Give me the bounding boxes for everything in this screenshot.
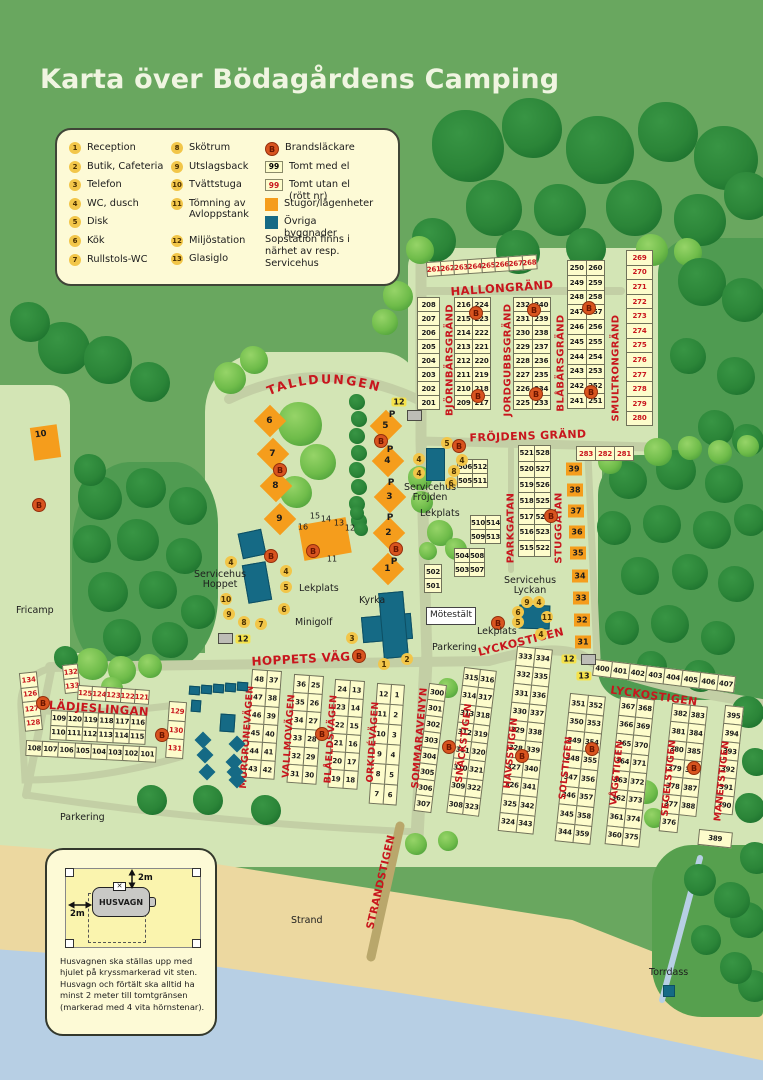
tree (405, 833, 427, 855)
plot-row: 505511 (458, 473, 488, 488)
legend-item: 4WC, dusch (69, 198, 167, 210)
facility-badge-8: 8 (448, 465, 460, 477)
tree (643, 505, 681, 543)
legend-item: 3Telefon (69, 179, 167, 191)
plot-15: 15 (346, 716, 363, 736)
plot-row: 246256 (568, 319, 605, 335)
plot-row: 501 (425, 578, 442, 593)
plot-block-row_283: 283282281 (577, 447, 634, 461)
stuga-box-31: 31 (575, 636, 591, 649)
corner-stone (65, 939, 74, 948)
plot-249: 249 (567, 275, 587, 291)
parking-mark: P (387, 513, 394, 523)
plot-129: 129 (168, 701, 187, 722)
distance-label-vertical: 2m (138, 873, 153, 883)
tree (735, 793, 763, 823)
plot-with-el-icon: 99 (265, 161, 283, 173)
plot-row: 280 (627, 411, 653, 427)
plot-236: 236 (532, 353, 552, 368)
label-lekplats: Lekplats (299, 584, 349, 594)
plot-222: 222 (472, 325, 491, 340)
fire-extinguisher-marker: B (36, 696, 50, 710)
plot-1: 1 (389, 684, 405, 706)
plot-246: 246 (567, 319, 587, 335)
plot-509: 509 (470, 529, 486, 544)
legend-item-label: Skötrum (189, 142, 269, 154)
plot-275: 275 (626, 338, 653, 354)
plot-359: 359 (572, 824, 592, 845)
miljostation-number: 12 (561, 655, 576, 664)
fire-extinguisher-marker: B (469, 306, 483, 320)
plot-row: 230238 (514, 325, 551, 340)
plot-213: 213 (454, 339, 473, 354)
plot-525: 525 (534, 492, 551, 509)
plot-row: 245255 (568, 334, 605, 350)
stuga-box-37: 37 (568, 505, 584, 518)
tree (432, 110, 504, 182)
plot-row: 277 (627, 367, 653, 383)
storstuga-number: 13 (334, 519, 344, 528)
parking-mark: P (388, 478, 395, 488)
tree (718, 566, 754, 602)
plot-201: 201 (417, 395, 440, 410)
label-lekplats: Lekplats (420, 509, 470, 519)
tree (88, 572, 128, 612)
plot-279: 279 (626, 396, 653, 412)
legend-number-icon: 13 (171, 253, 183, 265)
plot-274: 274 (626, 323, 653, 339)
tree (724, 172, 763, 220)
legend-item-label: Tömning av Avloppstank (189, 198, 269, 222)
page-title: Karta över Bödagårdens Camping (40, 64, 559, 95)
plot-14: 14 (347, 698, 364, 718)
plot-row: 520527 (519, 461, 551, 478)
stuga-box-38: 38 (567, 484, 583, 497)
plot-273: 273 (626, 308, 653, 324)
legend-item: 5Disk (69, 216, 167, 228)
tree (130, 362, 170, 402)
plot-37: 37 (265, 670, 282, 690)
caravan-rules-text: Husvagnen ska ställas upp med hjulet på … (60, 956, 208, 1013)
facility-badge-8: 8 (238, 616, 250, 628)
plot-522: 522 (534, 540, 551, 557)
legend-number-icon: 8 (171, 142, 183, 154)
plot-504: 504 (454, 548, 470, 563)
plot-row: 521528 (519, 445, 551, 462)
tree (350, 506, 364, 520)
tree (502, 98, 562, 158)
legend-number-icon: 6 (69, 235, 81, 247)
legend-item: 11Tömning av Avloppstank (171, 198, 269, 222)
tree (672, 554, 708, 590)
fire-extinguisher-marker: B (315, 727, 329, 741)
parking-mark: P (387, 445, 394, 455)
legend-item: Stugor/lägenheter (265, 198, 364, 211)
tree (737, 435, 759, 457)
tree (644, 438, 672, 466)
plot-row: 283282281 (577, 446, 634, 461)
building (191, 700, 202, 713)
facility-badge-2: 2 (401, 653, 413, 665)
stuga-number: 9 (277, 514, 283, 524)
fire-extinguisher-marker: B (515, 749, 529, 763)
label-parkering: Parkering (432, 643, 486, 653)
fire-extinguisher-icon: B (265, 142, 279, 156)
distance-label-horizontal: 2m (70, 909, 85, 919)
fire-extinguisher-marker: B (273, 463, 287, 477)
fire-extinguisher-marker: B (529, 387, 543, 401)
plot-18: 18 (342, 770, 359, 790)
legend-item-label: Telefon (87, 179, 167, 191)
tree (354, 522, 368, 536)
plot-517: 517 (518, 508, 535, 525)
plot-230: 230 (513, 325, 533, 340)
plot-519: 519 (518, 477, 535, 494)
legend-item-label: Glasiglo (189, 253, 269, 265)
plot-row: 212220 (455, 353, 491, 368)
fire-extinguisher-marker: B (687, 761, 701, 775)
tree (349, 428, 365, 444)
plot-row: 250260 (568, 260, 605, 276)
plot-255: 255 (586, 334, 606, 350)
stuga-number: 8 (273, 481, 279, 491)
legend-number-icon: 12 (171, 235, 183, 247)
legend-item-label: Rullstols-WC (87, 254, 167, 266)
plot-281: 281 (614, 446, 634, 461)
map-legend: 1Reception2Butik, Cafeteria3Telefon4WC, … (55, 128, 400, 286)
plot-row: 128 (24, 714, 43, 731)
plot-115: 115 (128, 729, 146, 745)
street-label-stuggatan: STUGGATAN (554, 492, 565, 563)
plot-row: 202 (418, 381, 440, 396)
legend-item-label: Stugor/lägenheter (284, 198, 364, 210)
plot-17: 17 (343, 752, 360, 772)
plot-220: 220 (472, 353, 491, 368)
label-kyrka: Kyrka (359, 596, 399, 606)
plot-228: 228 (513, 353, 533, 368)
plot-131: 131 (165, 738, 184, 759)
plot-212: 212 (454, 353, 473, 368)
tree (691, 925, 721, 955)
label-servicehus_frojden: Servicehus Fröjden (399, 483, 461, 504)
plot-527: 527 (534, 461, 551, 478)
tree (76, 648, 108, 680)
legend-number-icon: 11 (171, 198, 183, 210)
legend-item: 1Reception (69, 142, 167, 154)
legend-item-label: Butik, Cafeteria (87, 161, 167, 173)
stuga-number: 3 (387, 492, 393, 502)
fire-extinguisher-marker: B (452, 439, 466, 453)
legend-number-icon: 10 (171, 179, 183, 191)
plot-521: 521 (518, 445, 535, 462)
plot-row: 207 (418, 311, 440, 326)
legend-item-label: Tvättstuga (189, 179, 269, 191)
tree (722, 278, 763, 322)
plot-16: 16 (344, 734, 361, 754)
tree (240, 346, 268, 374)
parking-mark: P (391, 557, 398, 567)
tree (717, 357, 755, 395)
tree (684, 864, 716, 896)
legend-item: 9Utslagsback (171, 161, 269, 173)
caravan-shape: HUSVAGN (92, 887, 150, 917)
legend-item: 6Kök (69, 235, 167, 247)
tree (152, 622, 188, 658)
legend-number-icon: 7 (69, 254, 81, 266)
tree (117, 519, 159, 561)
plot-row: 205 (418, 339, 440, 354)
tree (466, 180, 522, 236)
tree (351, 445, 367, 461)
plot-270: 270 (626, 265, 653, 281)
stuga-box-33: 33 (573, 592, 589, 605)
stuga-box-36: 36 (569, 526, 585, 539)
miljostation-icon (407, 410, 422, 421)
plot-502: 502 (424, 564, 442, 579)
plot-128: 128 (23, 714, 43, 731)
plot-510: 510 (470, 515, 486, 530)
fire-extinguisher-marker: B (32, 498, 46, 512)
fire-extinguisher-marker: B (352, 649, 366, 663)
stuga-box-35: 35 (570, 547, 586, 560)
building (225, 683, 237, 693)
plot-row: 273 (627, 308, 653, 324)
plot-528: 528 (534, 445, 551, 462)
street-label-blabarsgrand: BLÅBÄRSGRÄND (556, 314, 567, 411)
plot-389: 389 (697, 829, 732, 848)
label-fricamp: Fricamp (16, 606, 66, 616)
street-label-bjornbarsgrand: BJÖRNBÄRSGRÄND (445, 304, 456, 416)
plot-row: 515522 (519, 540, 551, 557)
tree (138, 654, 162, 678)
tree (606, 180, 662, 236)
facility-badge-4: 4 (533, 596, 545, 608)
legend-item: 13Glasiglo (171, 253, 269, 265)
plot-269: 269 (626, 250, 653, 266)
street-label-smultrongrand: SMULTRONGRÄND (611, 315, 622, 422)
legend-number-icon: 4 (69, 198, 81, 210)
legend-item-label: WC, dusch (87, 198, 167, 210)
plot-237: 237 (532, 339, 552, 354)
plot-235: 235 (532, 367, 552, 382)
glasiglo-number: 13 (576, 672, 591, 681)
tree (678, 436, 702, 460)
tree (701, 621, 735, 655)
tree (406, 236, 434, 264)
plot-518: 518 (518, 492, 535, 509)
fire-extinguisher-marker: B (544, 509, 558, 523)
plot-207: 207 (417, 311, 440, 326)
fire-extinguisher-marker: B (471, 389, 485, 403)
miljostation-icon (581, 654, 596, 665)
plot-row: 276 (627, 352, 653, 368)
building (201, 685, 213, 695)
plot-13: 13 (348, 680, 365, 700)
legend-item: 2Butik, Cafeteria (69, 161, 167, 173)
stuga-number: 2 (386, 528, 392, 538)
plot-515: 515 (518, 540, 535, 557)
stugor-color-swatch (265, 198, 278, 211)
tree (278, 402, 322, 446)
plot-row: 76 (370, 783, 398, 806)
legend-item-label: Utslagsback (189, 161, 269, 173)
miljostation-number: 12 (235, 635, 250, 644)
facility-badge-10: 10 (220, 593, 232, 605)
tree (438, 831, 458, 851)
legend-note: Sopstation finns i närhet av resp. Servi… (265, 234, 383, 271)
tree (137, 785, 167, 815)
plot-130: 130 (166, 720, 185, 741)
plot-row: 516523 (519, 524, 551, 541)
plot-204: 204 (417, 353, 440, 368)
plot-row: 227235 (514, 367, 551, 382)
plot-row: 519526 (519, 477, 551, 494)
plot-row: 360375 (606, 825, 642, 848)
legend-number-icon: 5 (69, 216, 81, 228)
legend-item: 8Skötrum (171, 142, 269, 154)
tree (139, 571, 177, 609)
tree (351, 479, 367, 495)
plot-211: 211 (454, 367, 473, 382)
plot-514: 514 (485, 515, 501, 530)
plot-229: 229 (513, 339, 533, 354)
plot-272: 272 (626, 294, 653, 310)
plot-29: 29 (302, 747, 319, 767)
building (189, 686, 201, 696)
plot-row: 272 (627, 294, 653, 310)
plot-219: 219 (472, 367, 491, 382)
plot-278: 278 (626, 381, 653, 397)
tree (349, 462, 365, 478)
tree (126, 468, 166, 508)
plot-row: 208 (418, 297, 440, 312)
plot-520: 520 (518, 461, 535, 478)
plot-block-mid_pairs_a: 510514509513 (471, 516, 501, 544)
street-label-parkgatan: PARKGATAN (506, 493, 517, 564)
plot-row: 211219 (455, 367, 491, 382)
plot-513: 513 (485, 529, 501, 544)
fire-extinguisher-marker: B (155, 728, 169, 742)
fire-extinguisher-marker: B (584, 385, 598, 399)
plot-38: 38 (264, 688, 281, 708)
facility-badge-9: 9 (521, 596, 533, 608)
tree (705, 465, 743, 503)
plot-276: 276 (626, 352, 653, 368)
plot-503: 503 (454, 562, 470, 577)
legend-number-icon: 9 (171, 161, 183, 173)
stuga-number: 6 (267, 416, 273, 426)
legend-number-icon: 3 (69, 179, 81, 191)
plot-101: 101 (138, 746, 156, 763)
tree (84, 336, 132, 384)
plot-227: 227 (513, 367, 533, 382)
facility-badge-3: 3 (346, 632, 358, 644)
tree (720, 952, 752, 984)
storstuga-number: 15 (310, 512, 320, 521)
plot-row: 274 (627, 323, 653, 339)
fire-extinguisher-marker: B (582, 301, 596, 315)
tree (10, 302, 50, 342)
building (237, 682, 249, 692)
corner-stone (192, 868, 201, 877)
plot-388: 388 (678, 796, 698, 817)
plot-row: 324343 (499, 812, 536, 835)
plot-206: 206 (417, 325, 440, 340)
stuga-box-34: 34 (572, 570, 588, 583)
plot-375: 375 (621, 826, 641, 847)
tree (597, 511, 631, 545)
tree (708, 440, 732, 464)
label-parkering: Parkering (60, 813, 114, 823)
tree (169, 487, 207, 525)
plot-row: 229237 (514, 339, 551, 354)
plot-244: 244 (567, 349, 587, 365)
plot-block-smultron_col: 269270271272273274275276277278279280 (627, 251, 653, 426)
plot-row: 504508 (455, 548, 485, 563)
plot-407: 407 (716, 674, 737, 693)
building (213, 684, 225, 694)
label-lekplats: Lekplats (477, 627, 527, 637)
plot-row: 278 (627, 381, 653, 397)
plot-277: 277 (626, 367, 653, 383)
plot-row: 213221 (455, 339, 491, 354)
plot-5: 5 (383, 764, 399, 786)
plot-260: 260 (586, 260, 606, 276)
plot-214: 214 (454, 325, 473, 340)
tree (103, 619, 141, 657)
plot-208: 208 (417, 297, 440, 312)
plot-243: 243 (567, 364, 587, 380)
plot-2: 2 (388, 704, 404, 726)
label-motestalt: Mötestält (426, 607, 476, 625)
fire-extinguisher-marker: B (442, 740, 456, 754)
facility-badge-9: 9 (223, 608, 235, 620)
plot-row: 206 (418, 325, 440, 340)
facility-badge-4: 4 (413, 453, 425, 465)
plot-39: 39 (263, 706, 280, 726)
plot-202: 202 (417, 381, 440, 396)
tree (181, 595, 215, 629)
plot-221: 221 (472, 339, 491, 354)
plot-203: 203 (417, 367, 440, 382)
plot-row: 518525 (519, 492, 551, 509)
plot-6: 6 (382, 784, 398, 806)
label-servicehus_hoppet: Servicehus Hoppet (188, 570, 252, 591)
legend-item: 10Tvättstuga (171, 179, 269, 191)
plot-row: 131 (166, 738, 184, 759)
tree (734, 504, 763, 536)
facility-badge-4: 4 (280, 565, 292, 577)
tree (74, 454, 106, 486)
legend-item-label: Brandsläckare (285, 142, 365, 154)
servicehus-hoppet-annex (238, 529, 267, 559)
legend-item-label: Kök (87, 235, 167, 247)
plot-block-col_501: 502501 (425, 565, 442, 593)
plot-row: 201 (418, 395, 440, 410)
plot-row: 279 (627, 396, 653, 412)
plot-row: 308323 (447, 794, 481, 817)
plot-526: 526 (534, 477, 551, 494)
facility-badge-11: 11 (541, 611, 553, 623)
plot-row: 509513 (471, 529, 501, 544)
fire-extinguisher-marker: B (264, 549, 278, 563)
plot-511: 511 (472, 473, 488, 488)
plot-without-el-icon: 99 (265, 179, 283, 191)
caravan-hitch (150, 897, 156, 907)
plot-row: 204 (418, 353, 440, 368)
tree (605, 611, 639, 645)
plot-268: 268 (522, 254, 538, 270)
